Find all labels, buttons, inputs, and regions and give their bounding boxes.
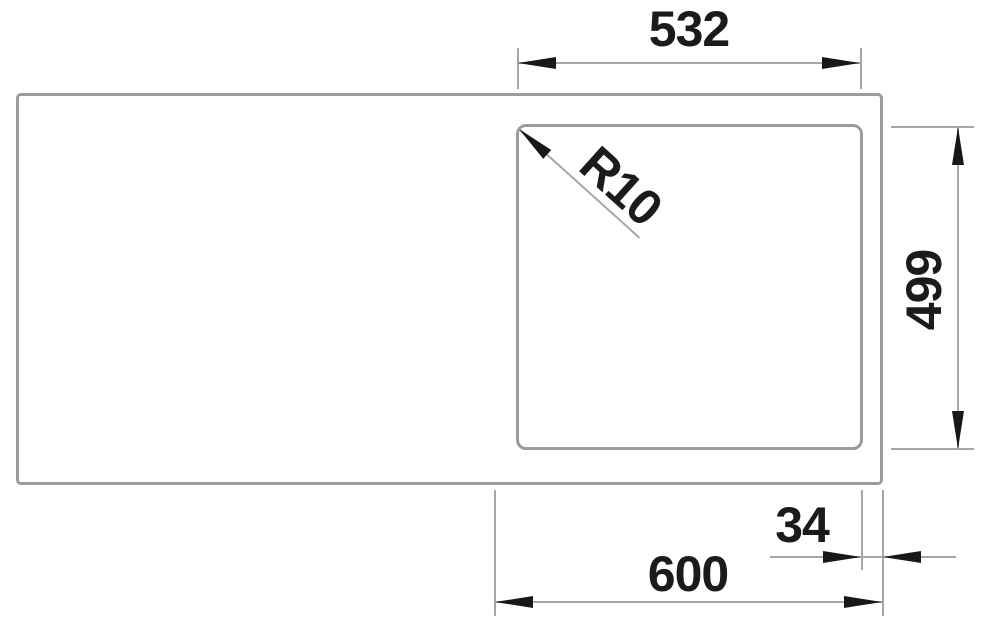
dim-499-line xyxy=(957,127,959,449)
dim-532-extension-right xyxy=(860,48,862,89)
dim-34-extension-left xyxy=(861,490,863,570)
dim-532-label: 532 xyxy=(649,4,729,54)
dim-34-line xyxy=(770,556,956,558)
dim-532-arrowhead-right-icon xyxy=(822,57,860,69)
technical-drawing-canvas: 532 499 34 600 R10 xyxy=(0,0,984,632)
dim-499-label: 499 xyxy=(899,250,949,330)
dim-600-arrowhead-left-icon xyxy=(495,596,533,608)
dim-600-label: 600 xyxy=(648,549,728,599)
dim-499-arrowhead-top-icon xyxy=(952,127,964,165)
dim-532-line xyxy=(518,62,861,64)
dim-532-arrowhead-left-icon xyxy=(518,57,556,69)
dim-34-arrowhead-right-icon xyxy=(883,551,921,563)
dim-499-arrowhead-bottom-icon xyxy=(952,411,964,449)
dim-600-arrowhead-right-icon xyxy=(844,596,882,608)
dim-34-label: 34 xyxy=(775,500,829,550)
